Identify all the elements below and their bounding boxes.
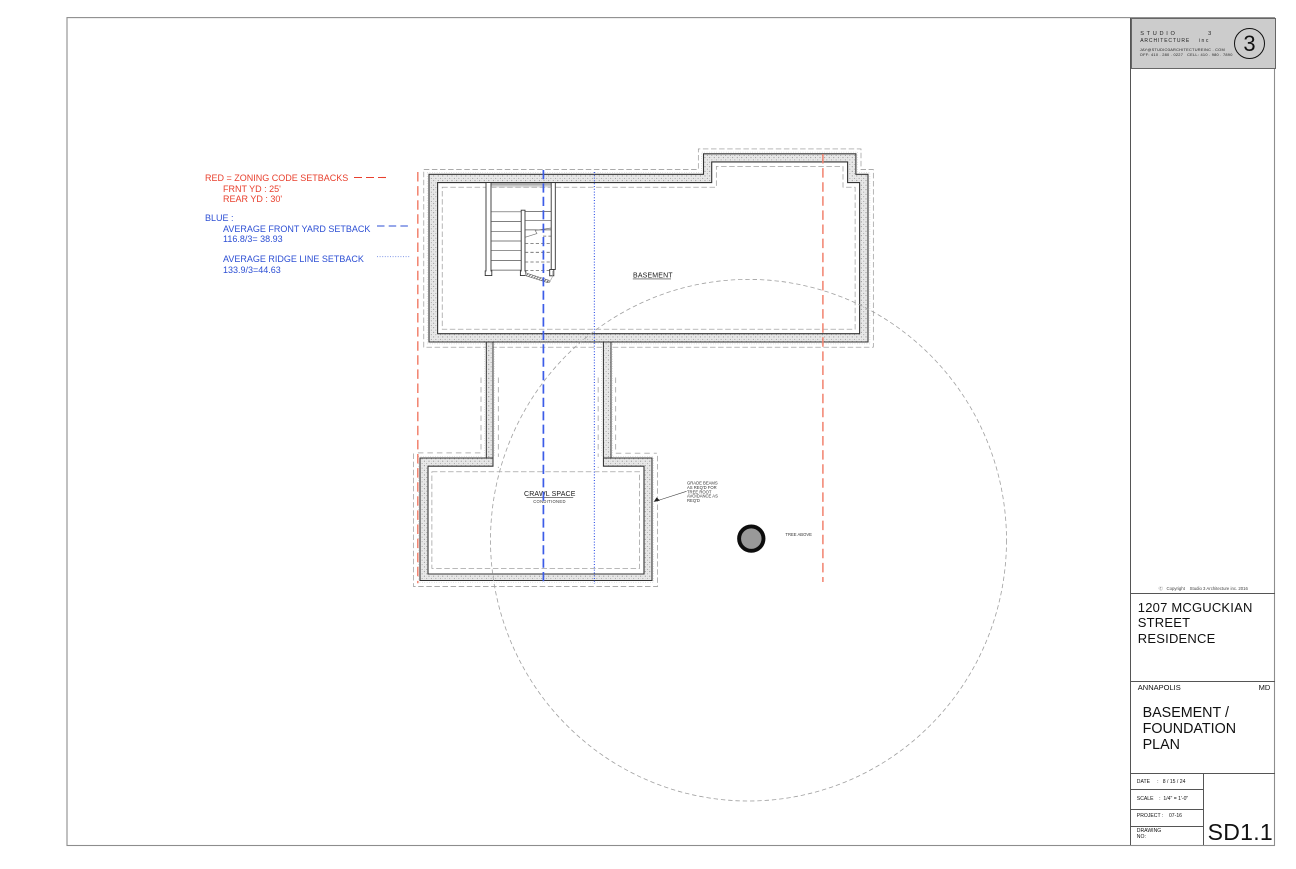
svg-text:BASEMENT: BASEMENT <box>633 273 673 280</box>
svg-text:CRAWL SPACE: CRAWL SPACE <box>524 491 576 498</box>
svg-text:TREE ABOVE: TREE ABOVE <box>785 532 812 537</box>
svg-text:CONDITIONED: CONDITIONED <box>533 499 566 504</box>
svg-text:REQ'D: REQ'D <box>687 498 700 503</box>
